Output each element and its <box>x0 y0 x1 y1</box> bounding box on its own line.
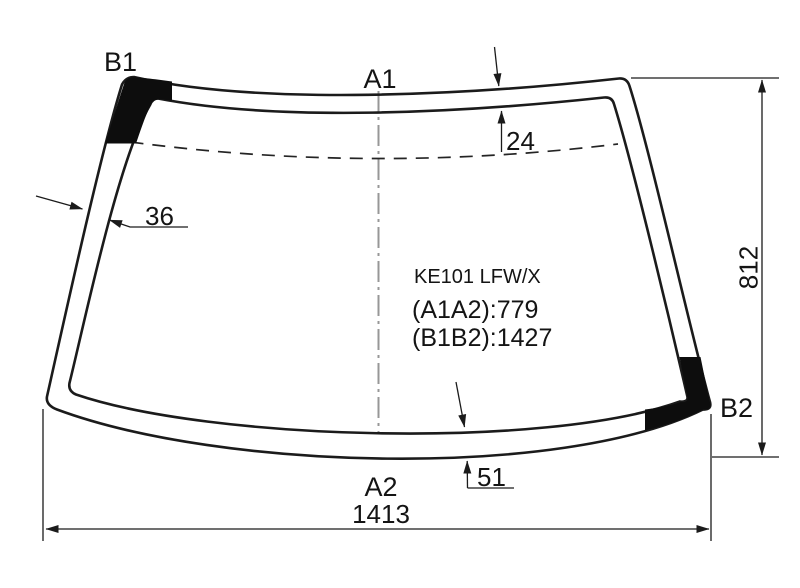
dim-36-value: 36 <box>145 201 174 231</box>
dim-24-value: 24 <box>506 126 535 156</box>
windshield-drawing-canvas: B1 A1 B2 A2 24 36 51 812 1413 KE101 LFW/… <box>0 0 800 588</box>
dim-36-outer-arrow <box>36 196 83 209</box>
dim-812-value: 812 <box>734 246 764 289</box>
dim-24-outer-arrow <box>495 47 499 86</box>
dim-51-inner-arrow <box>456 382 465 427</box>
dim-1413-value: 1413 <box>352 499 410 529</box>
label-b2: B2 <box>720 393 753 423</box>
spec-a1a2-text: (A1A2):779 <box>412 296 538 324</box>
label-a2: A2 <box>364 472 397 502</box>
part-code-text: KE101 LFW/X <box>414 266 541 288</box>
b2-corner-patch <box>645 357 710 431</box>
spec-b1b2-text: (B1B2):1427 <box>412 324 552 352</box>
label-a1: A1 <box>363 64 396 94</box>
dim-51-value: 51 <box>477 462 506 492</box>
ceramic-band-dashed-line <box>131 142 619 159</box>
label-b1: B1 <box>104 47 137 77</box>
windshield-diagram: B1 A1 B2 A2 24 36 51 812 1413 KE101 LFW/… <box>0 0 800 588</box>
